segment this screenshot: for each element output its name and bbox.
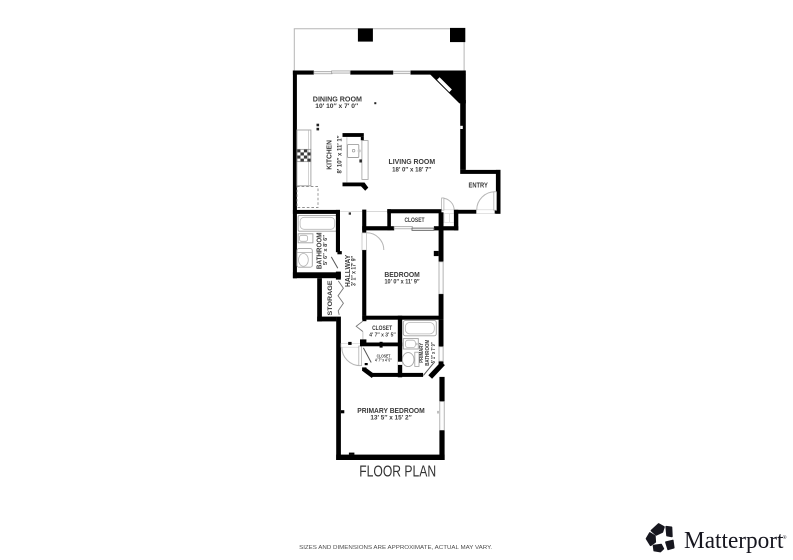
svg-text:13′ 5″ x 15′ 2″: 13′ 5″ x 15′ 2″	[370, 415, 411, 422]
svg-text:8′ 10″ x 11′ 1″: 8′ 10″ x 11′ 1″	[338, 135, 344, 173]
svg-text:FLOOR PLAN: FLOOR PLAN	[359, 463, 436, 480]
svg-text:10′ 10″ x 7′ 0″: 10′ 10″ x 7′ 0″	[315, 103, 358, 110]
svg-text:5′ 6″ x 8′ 6″: 5′ 6″ x 8′ 6″	[323, 235, 329, 265]
svg-text:CLOSET: CLOSET	[404, 217, 424, 224]
svg-text:Matterport: Matterport	[684, 527, 784, 554]
svg-text:10′ 0″ x 11′ 9″: 10′ 0″ x 11′ 9″	[385, 278, 420, 285]
svg-text:SIZES AND DIMENSIONS ARE APPRO: SIZES AND DIMENSIONS ARE APPROXIMATE, AC…	[299, 545, 492, 551]
svg-text:KITCHEN: KITCHEN	[324, 140, 333, 170]
svg-text:LIVING ROOM: LIVING ROOM	[389, 157, 436, 166]
svg-text:BATHROOM: BATHROOM	[425, 340, 431, 366]
svg-text:18′ 0″ x 18′ 7″: 18′ 0″ x 18′ 7″	[392, 166, 431, 173]
svg-text:4′ 7″ x 3′ 5″: 4′ 7″ x 3′ 5″	[369, 332, 396, 338]
svg-text:CLOSET: CLOSET	[372, 325, 392, 332]
svg-text:5′ 1″ x 7′ 9″: 5′ 1″ x 7′ 9″	[431, 342, 437, 363]
svg-text:STORAGE: STORAGE	[328, 281, 334, 316]
svg-text:®: ®	[783, 534, 787, 541]
svg-text:4′ 7″ x 4′ 5″: 4′ 7″ x 4′ 5″	[375, 357, 392, 362]
svg-text:ENTRY: ENTRY	[469, 181, 488, 190]
svg-text:3′ 1″ x 17′ 9″: 3′ 1″ x 17′ 9″	[352, 256, 358, 286]
